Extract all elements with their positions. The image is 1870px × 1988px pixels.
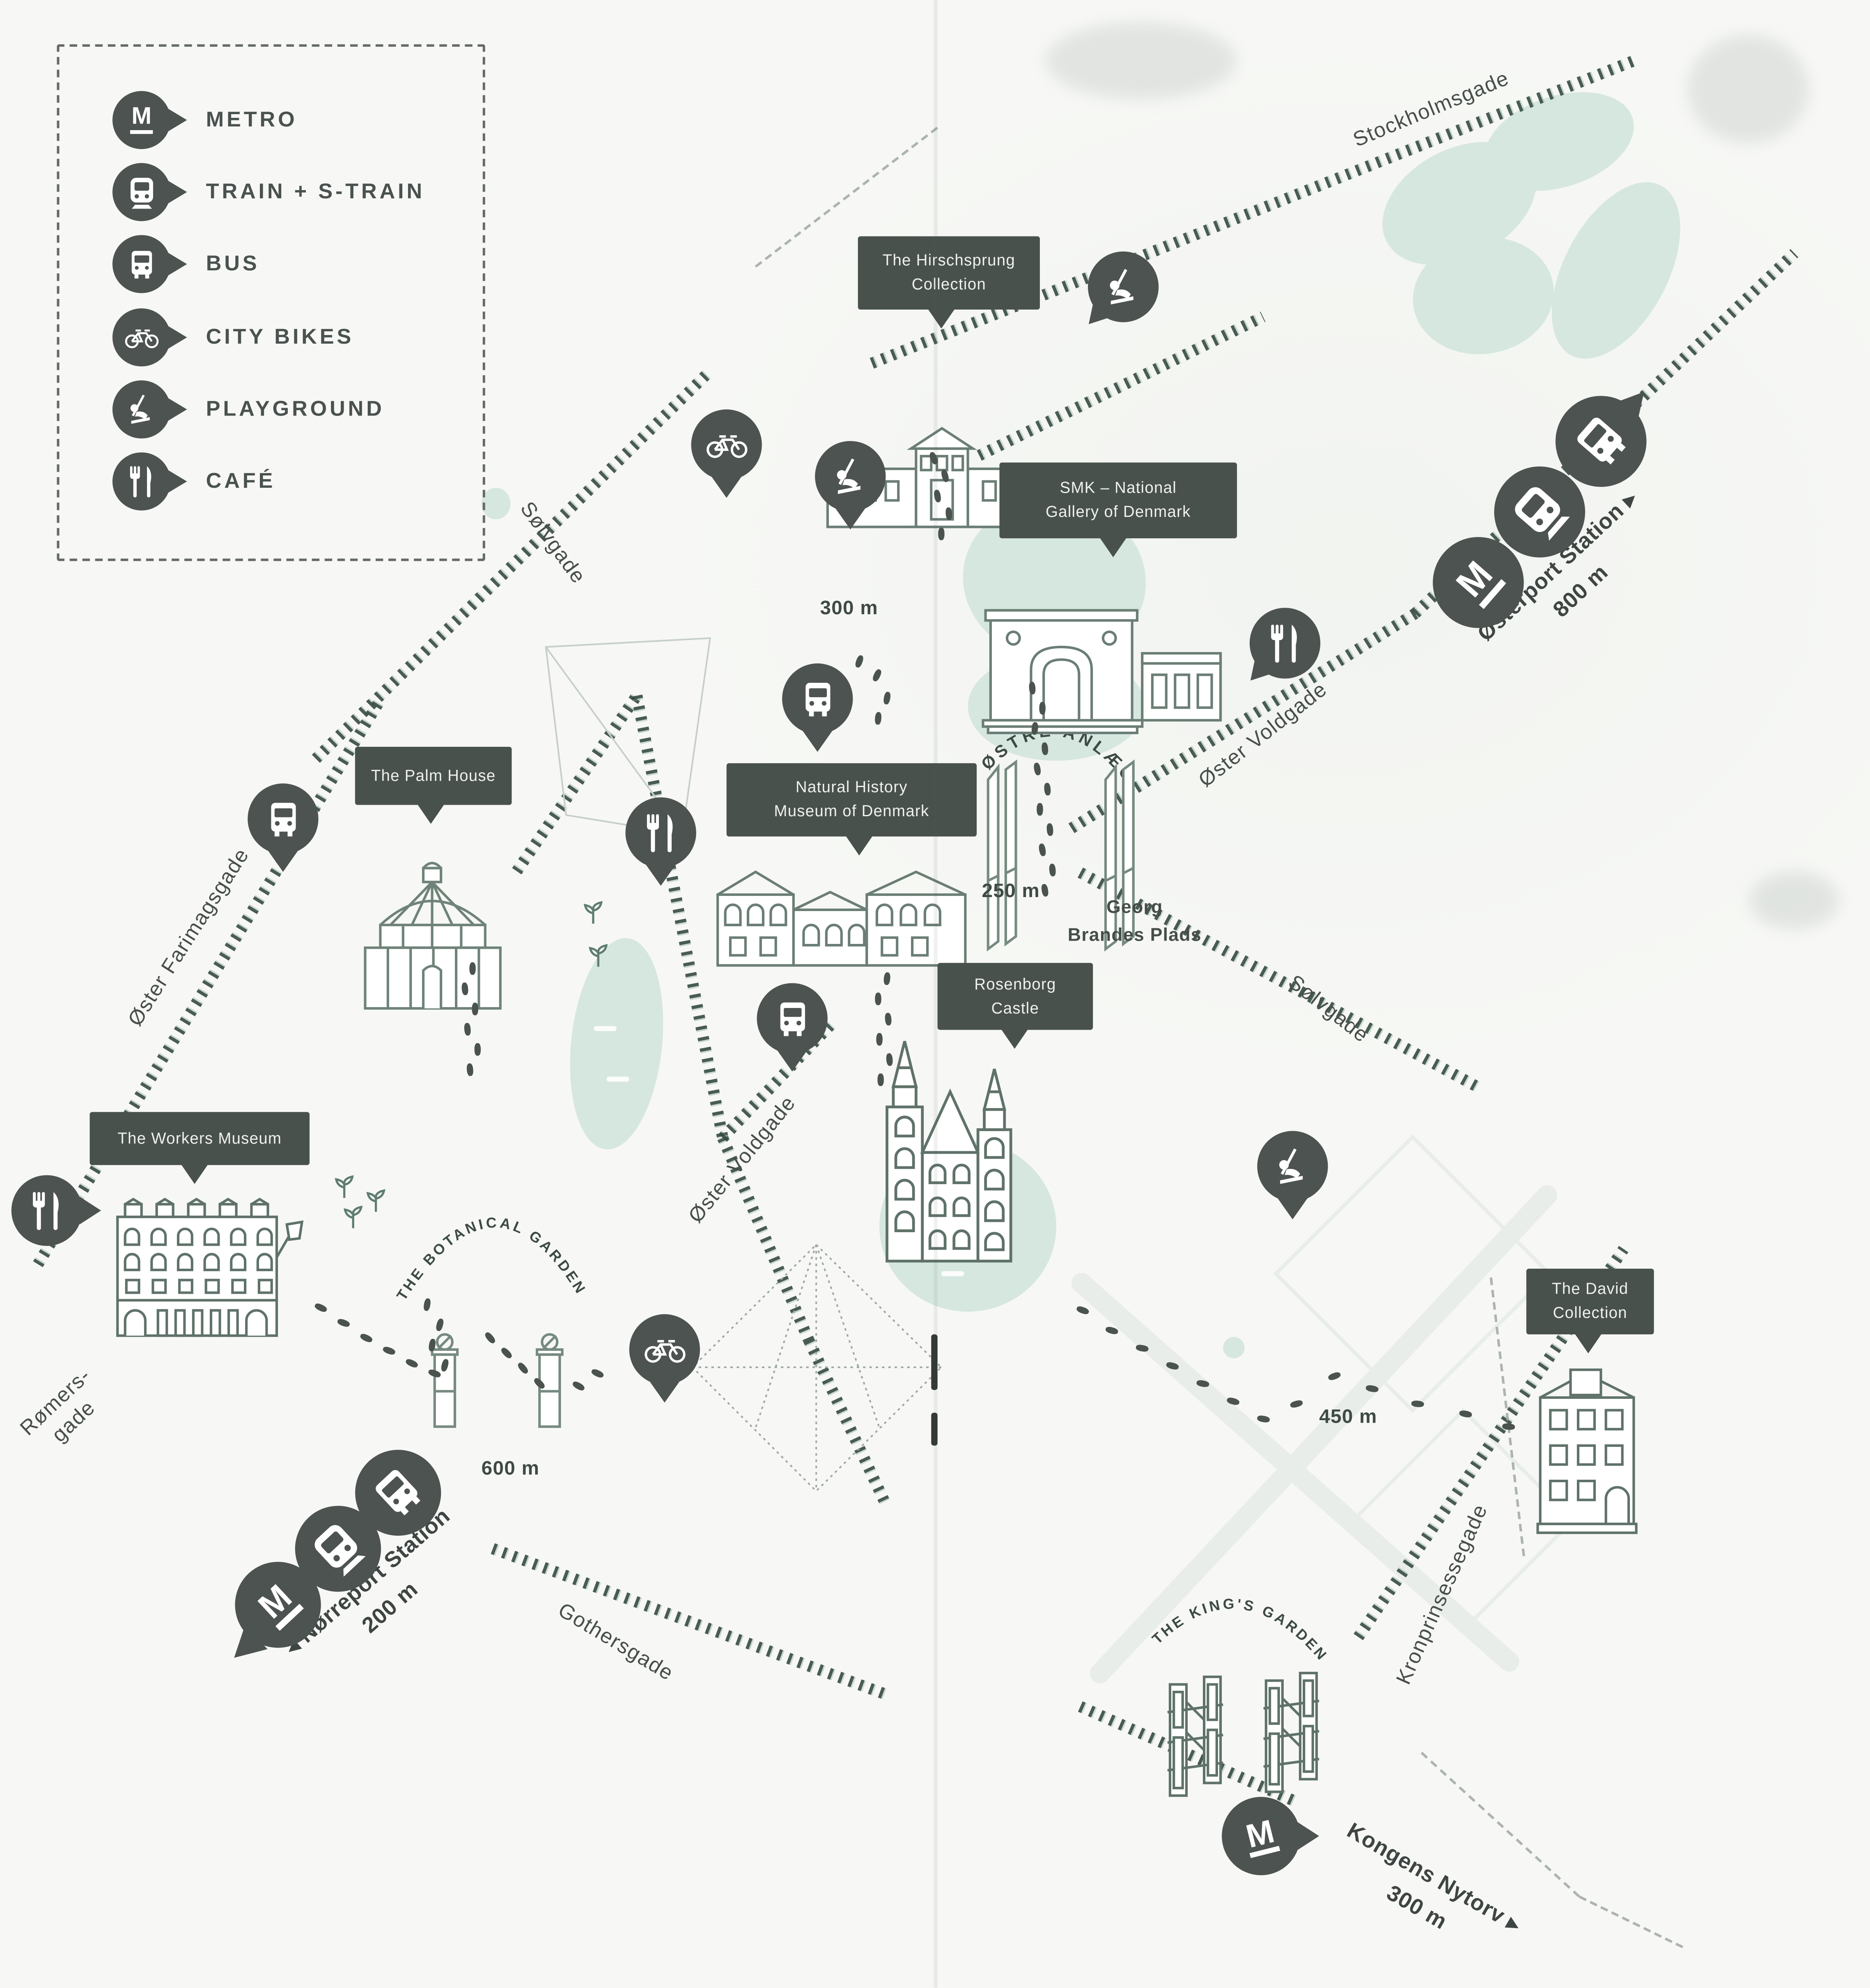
bike-icon bbox=[629, 1314, 700, 1385]
footprint-mark bbox=[424, 1299, 431, 1311]
footprint-mark bbox=[885, 1013, 892, 1026]
playground-pin bbox=[1088, 251, 1159, 322]
footprint-mark bbox=[1034, 763, 1042, 776]
callout-pointer bbox=[417, 803, 445, 824]
cafe-pin bbox=[11, 1175, 82, 1246]
footprint-mark bbox=[467, 1064, 474, 1076]
playground-icon bbox=[112, 380, 171, 438]
fold-mark bbox=[931, 1334, 937, 1390]
street-label-solvgade-e: Sølvgade bbox=[1283, 971, 1373, 1049]
footprint-mark bbox=[314, 1302, 328, 1313]
footprint-mark bbox=[872, 669, 882, 682]
copenhagen-tourist-map: ØSTRE ANLÆG THE BOTANICAL GARDEN THE KIN… bbox=[0, 0, 1870, 1988]
footprint-mark bbox=[337, 1318, 351, 1327]
metro-pin-legend: M bbox=[112, 91, 171, 149]
legend-item-metro: M METRO bbox=[112, 91, 298, 149]
footprint-mark bbox=[1257, 1415, 1270, 1423]
legend-label-playground: PLAYGROUND bbox=[206, 397, 385, 422]
footprint-mark bbox=[1042, 884, 1049, 897]
cafe-icon bbox=[625, 797, 696, 868]
plant-icon bbox=[584, 900, 603, 923]
plant-icon bbox=[367, 1188, 385, 1212]
rosenborg-line1: Rosenborg bbox=[974, 973, 1056, 996]
natural-history-museum-building-illustration bbox=[715, 867, 968, 968]
footprint-mark bbox=[406, 1358, 419, 1368]
kongens-nytorv-arrow-icon: ▸ bbox=[1503, 1910, 1525, 1937]
footprint-mark bbox=[1290, 1399, 1303, 1408]
david-line1: The David bbox=[1552, 1278, 1628, 1302]
footprint-mark bbox=[939, 528, 945, 540]
botanical-lake-blob bbox=[560, 933, 673, 1154]
water-wave-mark bbox=[941, 1271, 964, 1276]
footprint-mark bbox=[875, 712, 882, 725]
footprint-mark bbox=[484, 1331, 496, 1344]
footprint-mark bbox=[1049, 864, 1056, 877]
callout-hirschsprung-collection: The HirschsprungCollection bbox=[858, 236, 1040, 310]
bus-stop-pin bbox=[782, 663, 853, 734]
callout-pointer bbox=[1001, 1028, 1029, 1049]
area-label-georg-brandes-plads: Georg Brandes Plads bbox=[1068, 894, 1202, 951]
bus-icon bbox=[782, 663, 853, 734]
legend-item-cafe: CAFÉ bbox=[112, 452, 275, 511]
callout-pointer bbox=[1099, 537, 1127, 557]
footprint-mark bbox=[884, 973, 890, 985]
water-wave-mark bbox=[594, 1026, 617, 1031]
ostre-anlaeg-lake-blob bbox=[1525, 161, 1707, 380]
city-bikes-pin bbox=[691, 409, 762, 480]
footprint-mark bbox=[876, 993, 881, 1005]
nhm-line2: Museum of Denmark bbox=[774, 800, 929, 824]
dashed-path bbox=[1579, 1896, 1684, 1949]
area-label-botanical-garden: THE BOTANICAL GARDEN bbox=[394, 1214, 590, 1303]
bike-icon bbox=[112, 308, 171, 367]
cafe-pin bbox=[1250, 608, 1320, 678]
footprint-mark bbox=[572, 1380, 585, 1391]
bus-icon bbox=[757, 983, 828, 1054]
bus-icon bbox=[112, 235, 171, 293]
train-pin-legend bbox=[112, 163, 171, 221]
footprint-mark bbox=[1076, 1305, 1090, 1315]
legend-label-cafe: CAFÉ bbox=[206, 469, 276, 494]
playground-icon bbox=[1088, 251, 1159, 322]
callout-palm-house: The Palm House bbox=[355, 747, 512, 805]
callout-pointer bbox=[181, 1164, 209, 1184]
plant-icon bbox=[344, 1204, 363, 1228]
metro-icon: M bbox=[252, 1579, 303, 1630]
distance-label-450m: 450 m bbox=[1319, 1406, 1377, 1429]
train-icon bbox=[112, 163, 171, 221]
plant-icon bbox=[589, 943, 608, 966]
metro-icon: M bbox=[1242, 1815, 1280, 1857]
cafe-icon bbox=[11, 1175, 82, 1246]
green-dot bbox=[1223, 1337, 1244, 1358]
legend-label-citybikes: CITY BIKES bbox=[206, 325, 354, 350]
legend-item-bus: BUS bbox=[112, 235, 260, 293]
cafe-icon bbox=[1250, 608, 1320, 678]
footprint-mark bbox=[855, 655, 864, 668]
footprint-mark bbox=[360, 1333, 373, 1343]
playground-pin bbox=[1257, 1131, 1328, 1202]
city-bikes-pin bbox=[629, 1314, 700, 1385]
footprint-mark bbox=[591, 1368, 604, 1378]
legend-label-train: TRAIN + S-TRAIN bbox=[206, 179, 425, 205]
palm-house-line1: The Palm House bbox=[371, 764, 496, 788]
workers-museum-line1: The Workers Museum bbox=[117, 1127, 282, 1150]
legend-label-bus: BUS bbox=[206, 251, 260, 277]
callout-rosenborg-castle: RosenborgCastle bbox=[938, 963, 1093, 1030]
paper-fold-crease bbox=[934, 0, 937, 1988]
footprint-mark bbox=[1040, 702, 1046, 714]
road-hatching bbox=[491, 1543, 886, 1699]
nhm-line1: Natural History bbox=[774, 776, 929, 800]
footprint-mark bbox=[878, 1074, 884, 1086]
metro-icon: M bbox=[1451, 556, 1505, 609]
ostre-anlaeg-gate-illustration bbox=[984, 760, 1020, 949]
callout-workers-museum: The Workers Museum bbox=[90, 1112, 310, 1165]
playground-pin-legend bbox=[112, 380, 171, 438]
smk-line2: Gallery of Denmark bbox=[1046, 500, 1191, 524]
playground-icon bbox=[815, 441, 886, 512]
footprint-mark bbox=[436, 1319, 444, 1332]
footprint-mark bbox=[1044, 783, 1051, 796]
fold-mark bbox=[931, 1413, 937, 1446]
plant-icon bbox=[335, 1174, 354, 1198]
footprint-mark bbox=[1503, 1423, 1515, 1430]
bus-stop-pin bbox=[248, 783, 318, 854]
footprint-mark bbox=[1328, 1371, 1341, 1380]
legend-item-playground: PLAYGROUND bbox=[112, 380, 385, 438]
david-line2: Collection bbox=[1552, 1302, 1628, 1325]
footprint-mark bbox=[1037, 803, 1043, 815]
palm-house-building-illustration bbox=[360, 864, 505, 1016]
playground-icon bbox=[1257, 1131, 1328, 1202]
footprint-mark bbox=[464, 1023, 471, 1035]
street-label-romersgade: Rømers- gade bbox=[15, 1363, 116, 1462]
callout-pointer bbox=[1574, 1333, 1602, 1353]
road-hatching bbox=[803, 1337, 892, 1508]
footprint-mark bbox=[1039, 844, 1047, 856]
bike-pin-legend bbox=[112, 308, 171, 367]
hirschsprung-line1: The Hirschsprung bbox=[883, 249, 1015, 273]
footprint-mark bbox=[470, 963, 476, 975]
footprint-mark bbox=[473, 1003, 478, 1015]
bus-stop-pin bbox=[757, 983, 828, 1054]
georg-brandes-line2: Brandes Plads bbox=[1068, 923, 1202, 951]
georg-brandes-line1: Georg bbox=[1068, 894, 1202, 923]
bike-icon bbox=[691, 409, 762, 480]
hirschsprung-line2: Collection bbox=[883, 273, 1015, 297]
footprint-mark bbox=[383, 1346, 396, 1355]
callout-pointer bbox=[845, 835, 873, 855]
distance-label-600m: 600 m bbox=[482, 1458, 539, 1481]
david-collection-building-illustration bbox=[1535, 1365, 1638, 1535]
distance-label-250m: 250 m bbox=[982, 881, 1039, 903]
callout-pointer bbox=[927, 308, 955, 328]
smk-line1: SMK – National bbox=[1046, 477, 1191, 500]
bus-pin-legend bbox=[112, 235, 171, 293]
distance-label-300m: 300 m bbox=[820, 598, 878, 620]
water-wave-mark bbox=[606, 1077, 629, 1081]
playground-pin bbox=[815, 441, 886, 512]
scan-smudge bbox=[1750, 872, 1838, 929]
footprint-mark bbox=[501, 1347, 513, 1359]
callout-natural-history-museum: Natural HistoryMuseum of Denmark bbox=[727, 763, 977, 837]
footprint-mark bbox=[883, 692, 891, 705]
footprint-mark bbox=[517, 1362, 529, 1375]
cafe-pin bbox=[625, 797, 696, 868]
workers-museum-building-illustration bbox=[115, 1199, 305, 1341]
rosenborg-castle-illustration bbox=[882, 1028, 1016, 1269]
metro-icon: M bbox=[130, 107, 153, 133]
bus-icon bbox=[248, 783, 318, 854]
legend-label-metro: METRO bbox=[206, 108, 298, 133]
footprint-mark bbox=[475, 1044, 481, 1056]
legend-item-train: TRAIN + S-TRAIN bbox=[112, 163, 425, 221]
cafe-icon bbox=[112, 452, 171, 511]
rosenborg-line2: Castle bbox=[974, 996, 1056, 1020]
small-green-blob bbox=[482, 488, 511, 519]
callout-david-collection: The DavidCollection bbox=[1526, 1269, 1654, 1334]
station-label-kongens-nytorv: Kongens Nytorv ▸ 300 m bbox=[1323, 1814, 1527, 1972]
kings-garden-gate-illustration bbox=[1168, 1674, 1223, 1801]
street-label-solvgade-nw: Sølvgade bbox=[514, 498, 590, 589]
scan-smudge bbox=[1688, 35, 1808, 143]
callout-smk-national-gallery: SMK – NationalGallery of Denmark bbox=[999, 462, 1237, 538]
cafe-pin-legend bbox=[112, 452, 171, 511]
metro-pin-kongens-nytorv: M bbox=[1222, 1797, 1300, 1875]
footprint-mark bbox=[877, 1034, 883, 1046]
kings-garden-gate-illustration bbox=[1264, 1671, 1319, 1797]
smk-building-illustration bbox=[983, 597, 1223, 742]
road-hatching bbox=[512, 692, 641, 874]
footprint-mark bbox=[1047, 824, 1053, 836]
legend-item-citybikes: CITY BIKES bbox=[112, 308, 354, 367]
scan-smudge bbox=[1046, 23, 1236, 99]
